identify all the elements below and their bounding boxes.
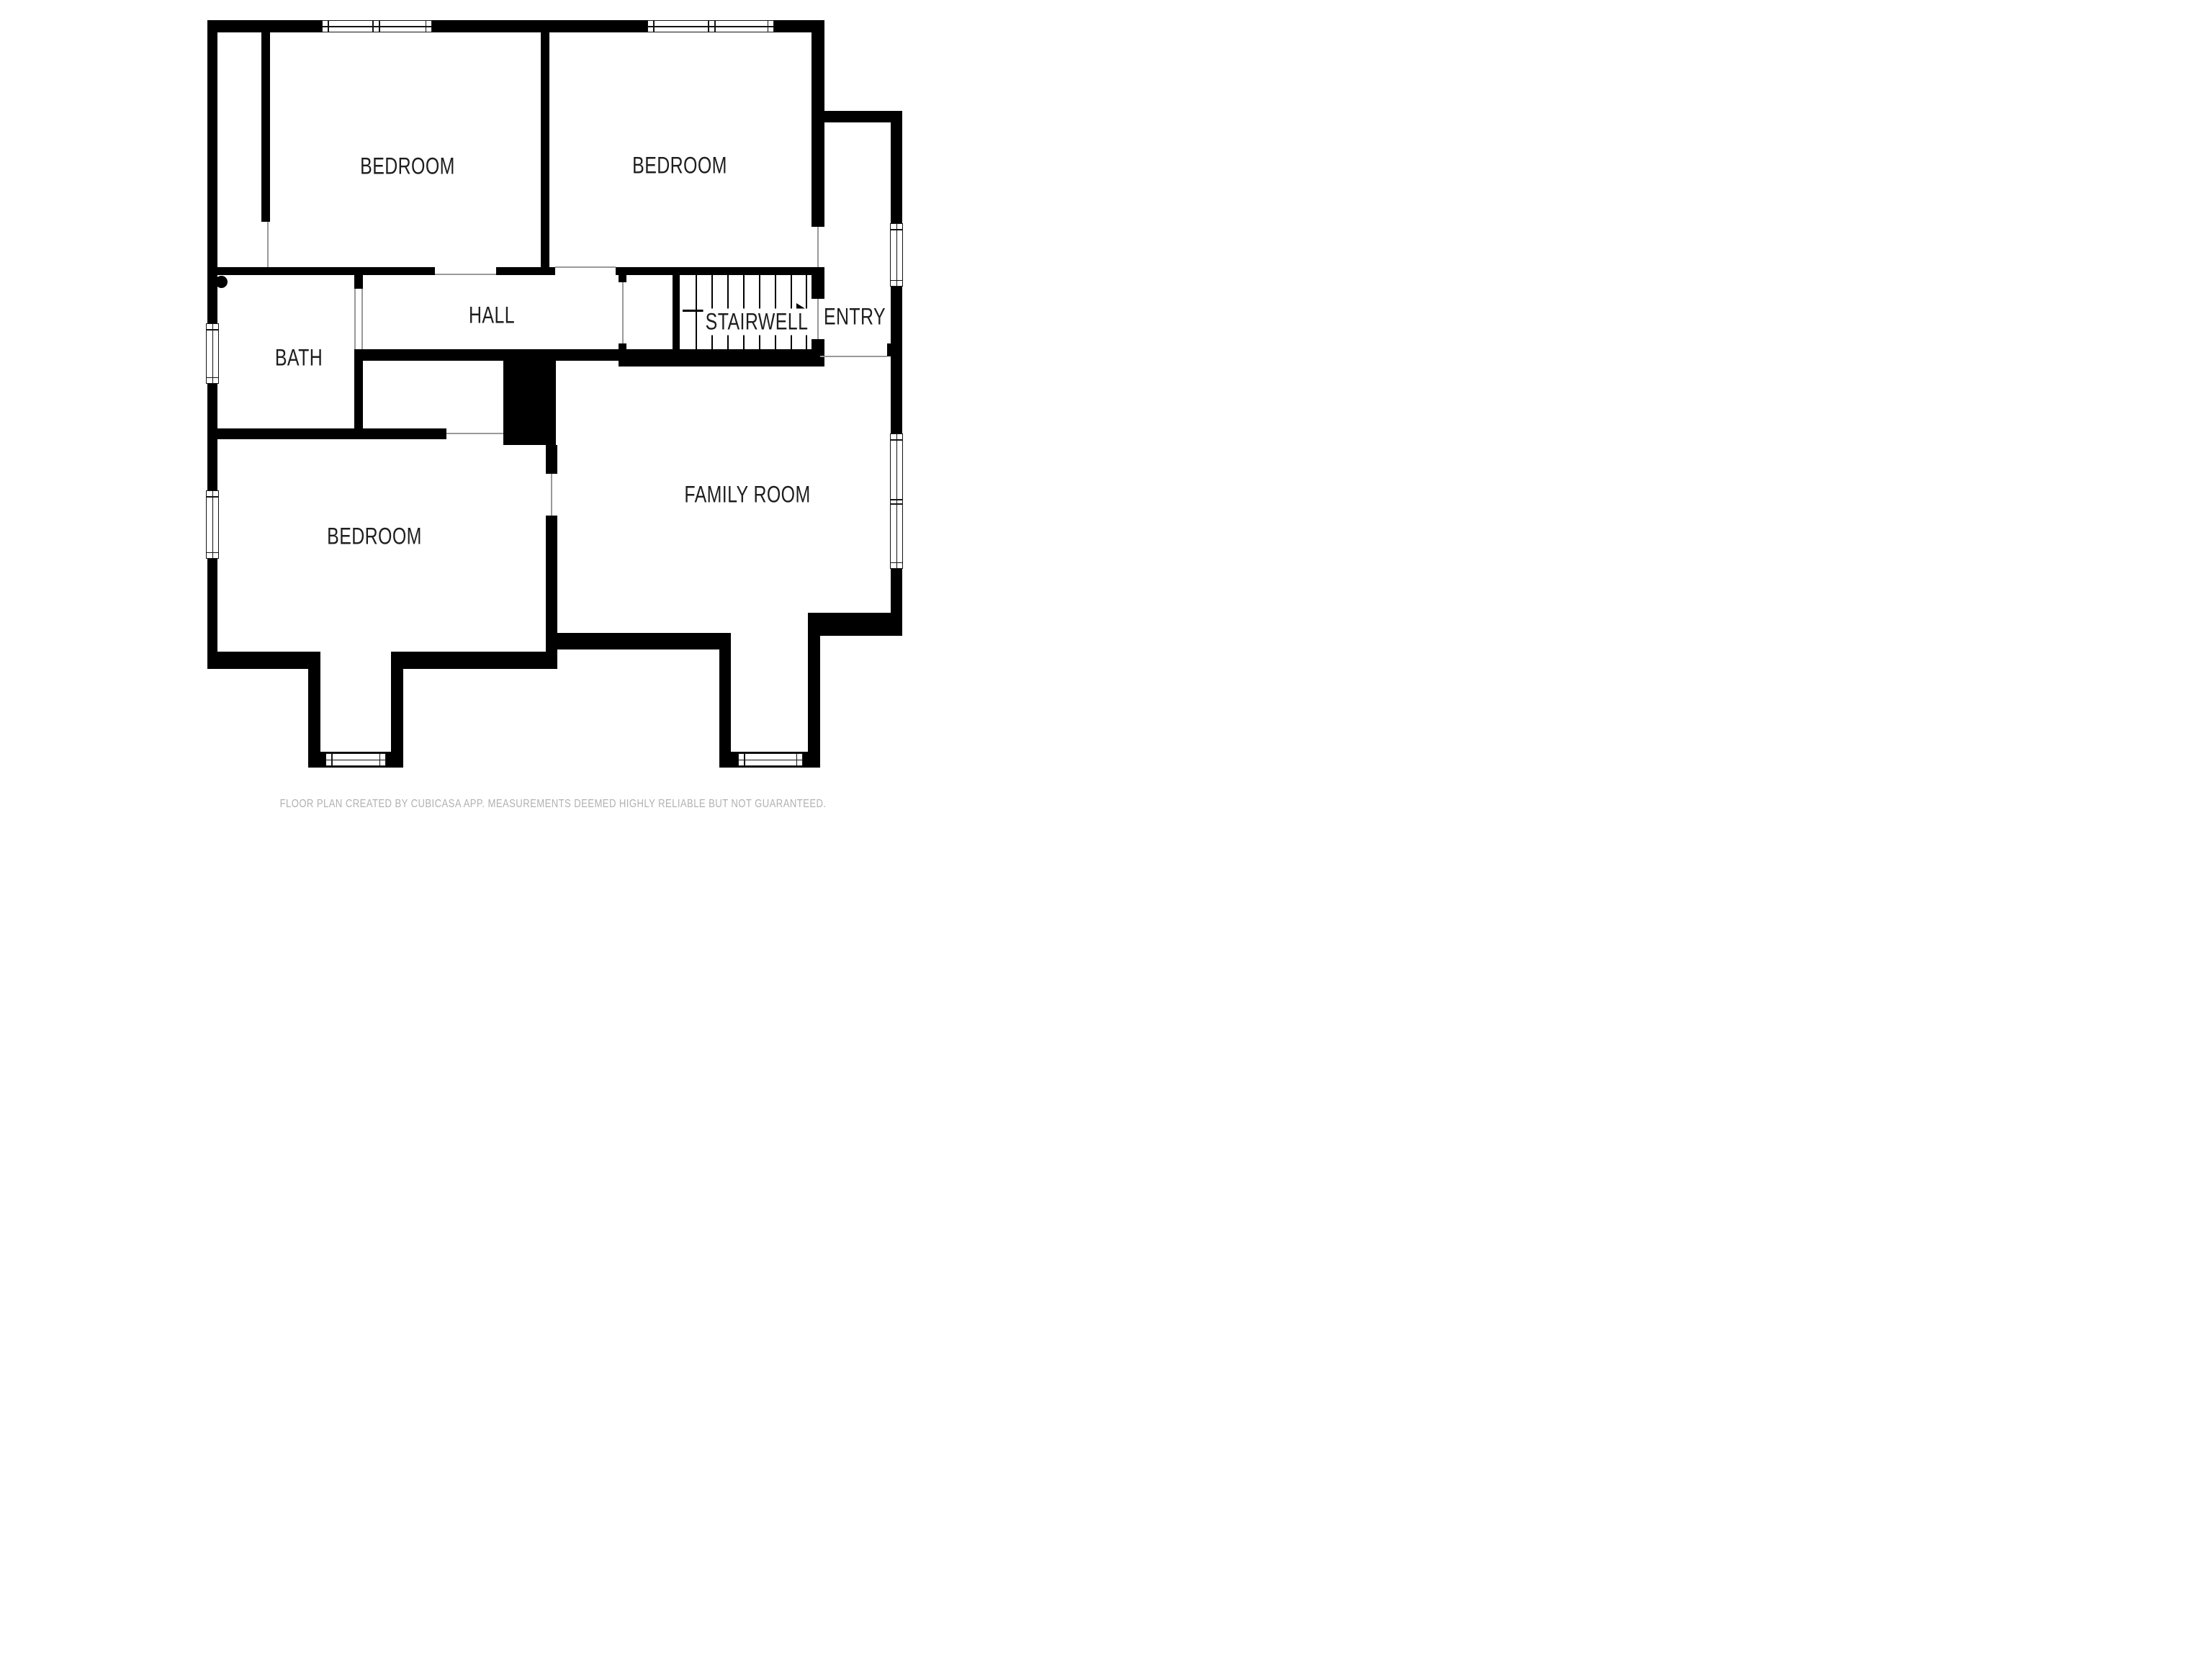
door-opening xyxy=(622,282,624,343)
window xyxy=(890,223,903,287)
door-hinge-dot-icon xyxy=(215,276,228,288)
window xyxy=(206,323,219,384)
door-opening xyxy=(446,433,503,434)
wall-entry-left-b xyxy=(811,267,824,299)
window xyxy=(322,20,432,32)
wall-hall-top-b xyxy=(496,267,555,275)
room-label-bath: BATH xyxy=(275,345,323,372)
floor-plan: BEDROOM BEDROOM HALL STAIRWELL ENTRY BAT… xyxy=(0,0,1106,829)
room-label-bedroom-bottom: BEDROOM xyxy=(327,523,422,550)
room-label-entry: ENTRY xyxy=(824,304,886,331)
wall-closet-left xyxy=(354,349,363,428)
window xyxy=(206,490,219,559)
wall-hall-top-c xyxy=(616,267,811,275)
door-opening xyxy=(267,222,269,267)
wall-bay1-left xyxy=(308,652,320,768)
wall-bedroom-bottom-top xyxy=(207,428,446,439)
wall-bedroom-family-divider-a xyxy=(546,445,557,474)
room-label-family-room: FAMILY ROOM xyxy=(684,482,810,508)
door-opening xyxy=(817,227,819,267)
wall-hall-bottom-a xyxy=(354,349,619,361)
wall-entry-bottom-stub xyxy=(887,343,902,356)
wall-bottom-family-right xyxy=(808,613,902,636)
stair-tread xyxy=(696,275,697,349)
door-opening xyxy=(820,356,887,357)
door-opening xyxy=(435,274,496,275)
door-opening xyxy=(354,289,356,349)
wall-bath-hall-divider xyxy=(354,267,363,289)
wall-bay2-right xyxy=(808,613,820,768)
disclaimer-text: FLOOR PLAN CREATED BY CUBICASA APP. MEAS… xyxy=(280,798,827,811)
door-opening xyxy=(551,474,552,516)
wall-bottom-bedroom-right xyxy=(391,652,557,669)
wall-bottom-bedroom-left xyxy=(207,652,320,669)
door-opening xyxy=(555,266,616,268)
window xyxy=(325,753,386,766)
wall-hall-bottom-b xyxy=(619,349,820,367)
wall-bedroom-divider-top xyxy=(541,32,549,275)
wall-closet-top-left xyxy=(261,32,270,222)
window xyxy=(890,433,903,569)
room-label-stairwell: STAIRWELL xyxy=(703,309,811,336)
wall-bay1-right xyxy=(391,652,403,768)
wall-bedroom-family-divider-b xyxy=(546,516,557,669)
wall-bottom-family-left xyxy=(546,633,731,649)
window xyxy=(647,20,774,32)
door-opening xyxy=(817,299,819,339)
wall-bay2-left xyxy=(719,633,731,768)
wall-entry-left-a xyxy=(811,122,824,227)
room-label-hall: HALL xyxy=(469,302,515,329)
window xyxy=(738,753,803,766)
wall-top-right-step xyxy=(811,32,824,122)
room-label-bedroom-top-left: BEDROOM xyxy=(360,153,455,180)
chimney-block xyxy=(503,361,556,445)
wall-hall-right-stub-top xyxy=(619,275,626,282)
door-opening xyxy=(361,289,363,349)
wall-stairwell-left xyxy=(673,275,680,349)
wall-hall-right-stub-bottom xyxy=(619,343,626,349)
room-label-bedroom-top-right: BEDROOM xyxy=(632,153,727,179)
wall-hall-top-a xyxy=(217,267,435,275)
